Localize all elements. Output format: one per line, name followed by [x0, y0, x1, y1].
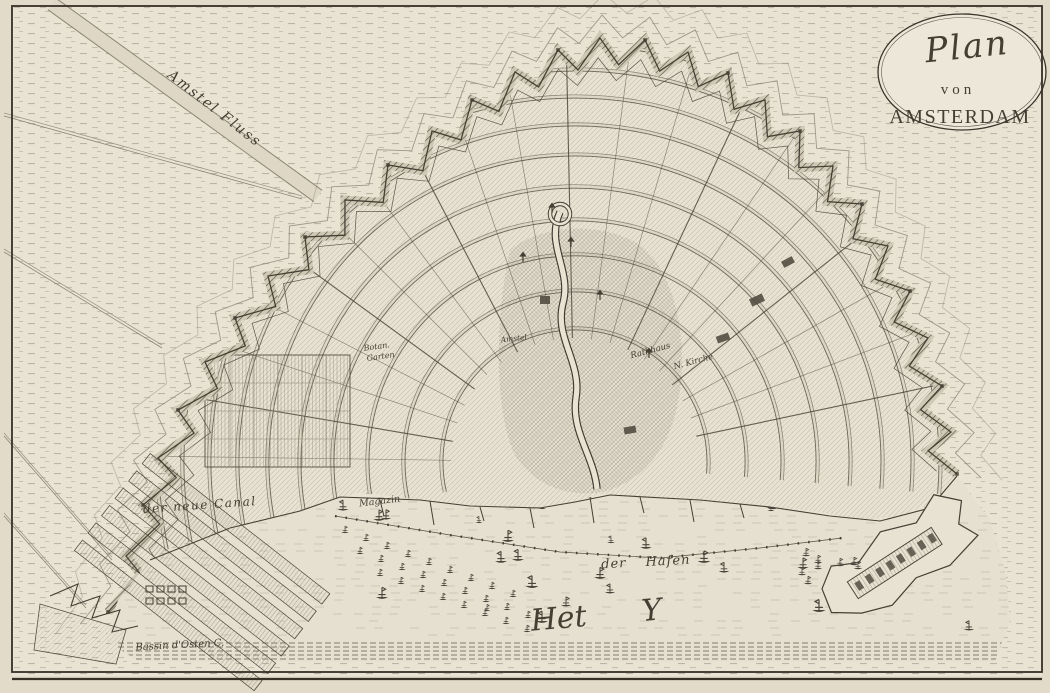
cartouche-title-von: von [941, 82, 976, 98]
antique-map-plan-von-amsterdam: Amstel Fluss der neue Canal Magazin Rath… [0, 0, 1050, 693]
cartouche-title-amsterdam: AMSTERDAM [889, 106, 1030, 128]
title-cartouche: Plan von AMSTERDAM [878, 14, 1046, 130]
